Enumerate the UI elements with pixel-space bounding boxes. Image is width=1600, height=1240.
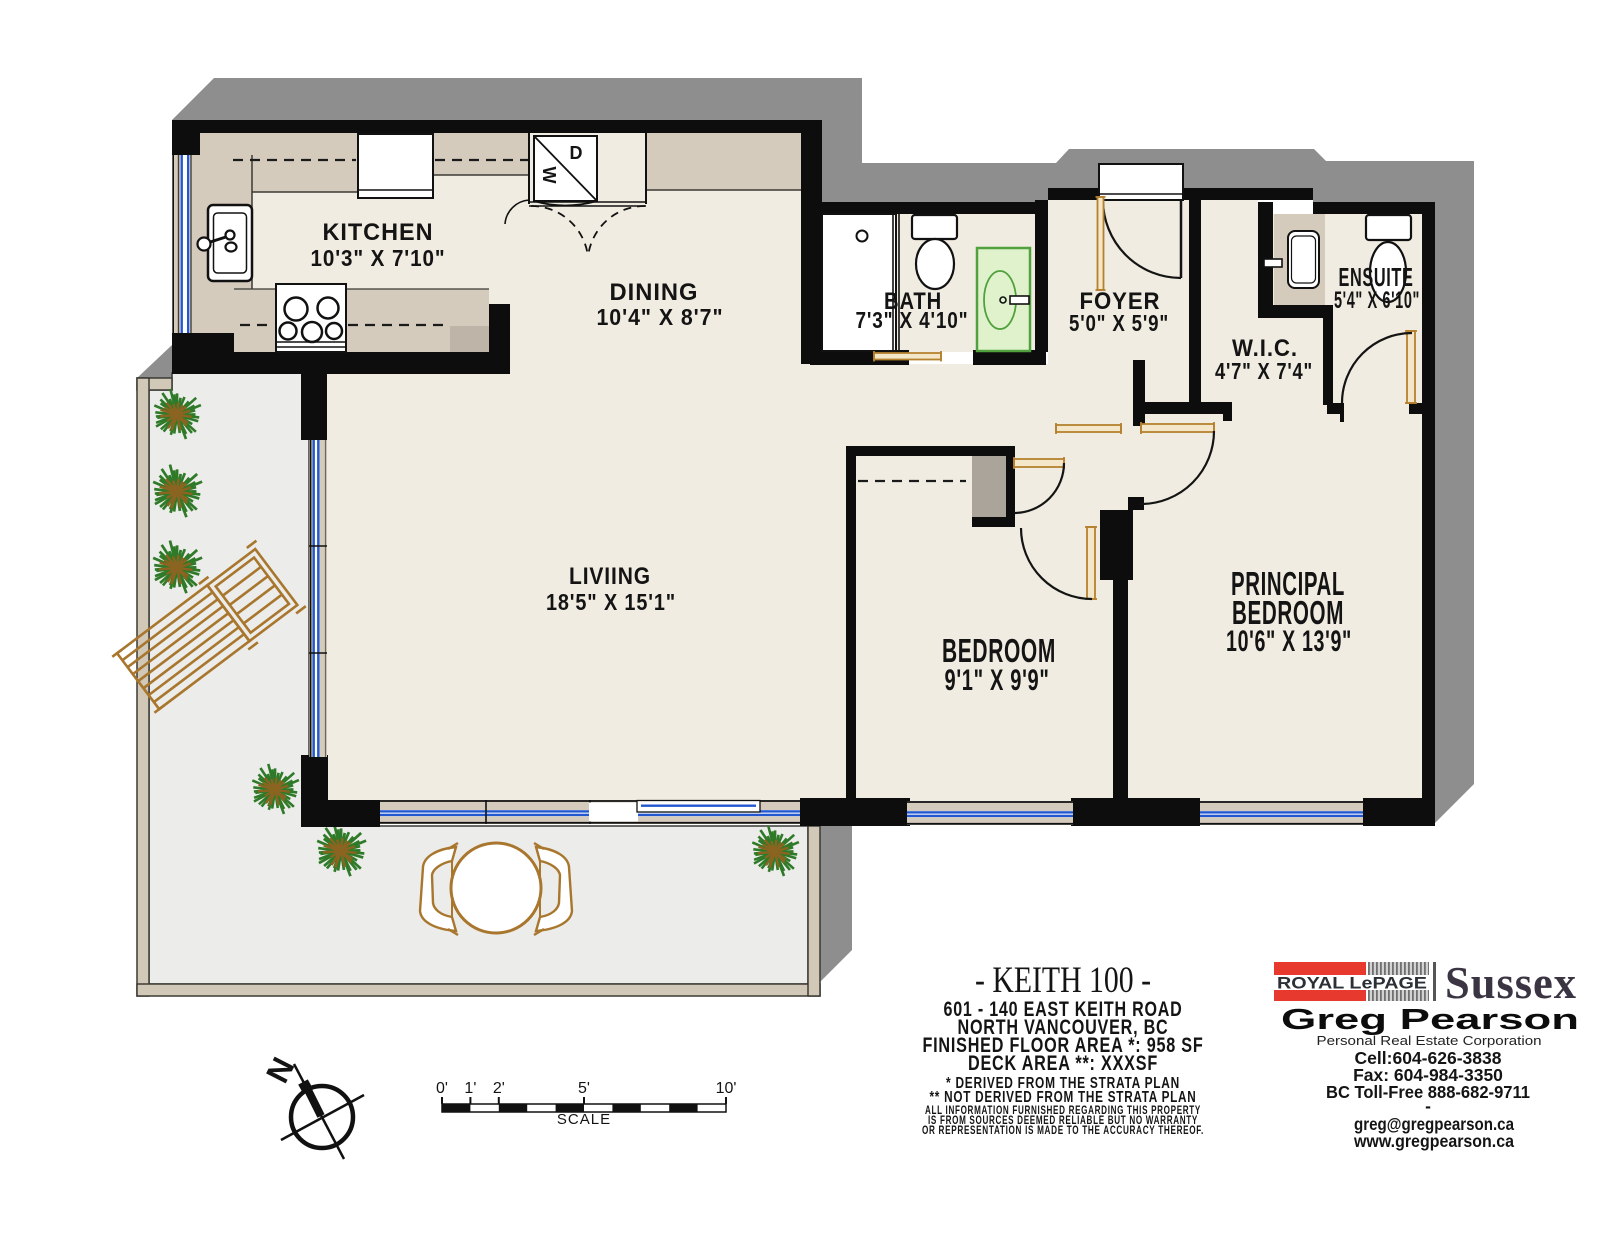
svg-text:18'5" X 15'1": 18'5" X 15'1" — [546, 589, 676, 615]
svg-text:KITCHEN: KITCHEN — [323, 219, 434, 246]
svg-text:ROYAL LePAGE: ROYAL LePAGE — [1277, 975, 1427, 993]
svg-text:D: D — [570, 143, 583, 163]
svg-text:Sussex: Sussex — [1445, 957, 1577, 1008]
svg-text:LIVIING: LIVIING — [569, 563, 651, 590]
svg-text:10': 10' — [716, 1080, 737, 1097]
svg-text:SCALE: SCALE — [557, 1111, 611, 1128]
svg-text:9'1" X 9'9": 9'1" X 9'9" — [945, 664, 1050, 697]
svg-text:5': 5' — [578, 1080, 590, 1097]
svg-text:DINING: DINING — [610, 279, 699, 306]
svg-text:10'6" X 13'9": 10'6" X 13'9" — [1226, 625, 1352, 658]
svg-text:Greg Pearson: Greg Pearson — [1281, 1004, 1579, 1036]
svg-text:- KEITH 100 -: - KEITH 100 - — [975, 960, 1151, 1001]
svg-text:2': 2' — [493, 1080, 505, 1097]
svg-text:OR REPRESENTATION IS MADE TO T: OR REPRESENTATION IS MADE TO THE ACCURAC… — [922, 1123, 1204, 1137]
svg-text:10'3" X 7'10": 10'3" X 7'10" — [311, 245, 446, 271]
svg-text:W: W — [539, 167, 559, 184]
svg-text:DECK AREA **: XXXSF: DECK AREA **: XXXSF — [968, 1052, 1158, 1075]
svg-text:5'0" X 5'9": 5'0" X 5'9" — [1069, 310, 1169, 336]
svg-text:5'4" X 6'10": 5'4" X 6'10" — [1334, 287, 1420, 314]
svg-text:7'3" X 4'10": 7'3" X 4'10" — [856, 307, 969, 333]
svg-text:Personal Real Estate Corpo: Personal Real Estate Corporation — [1317, 1033, 1542, 1048]
svg-text:10'4" X 8'7": 10'4" X 8'7" — [597, 304, 724, 330]
svg-text:4'7" X 7'4": 4'7" X 7'4" — [1215, 358, 1313, 384]
svg-text:www.gregpearson.ca: www.gregpearson.ca — [1353, 1131, 1514, 1151]
svg-text:1': 1' — [464, 1080, 476, 1097]
svg-text:0': 0' — [436, 1080, 448, 1097]
svg-text:-: - — [1425, 1096, 1431, 1116]
